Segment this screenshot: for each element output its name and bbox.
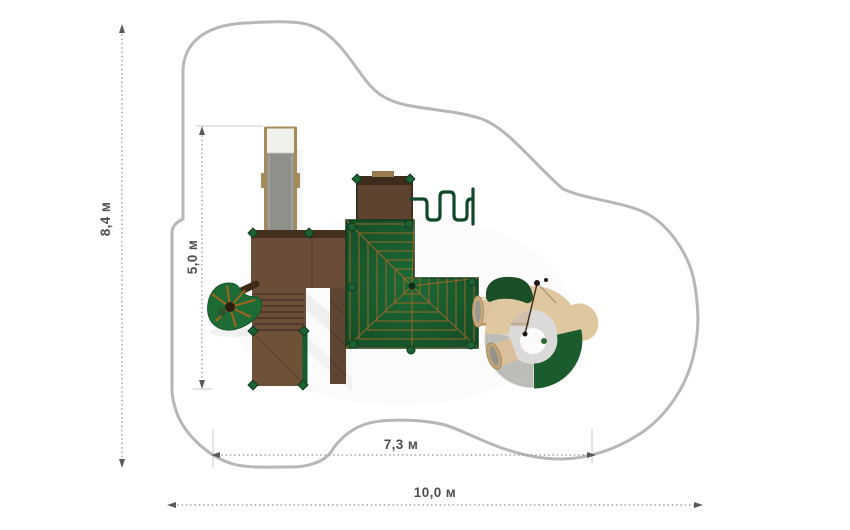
upper-platform — [251, 230, 346, 288]
straight-slide — [261, 127, 300, 239]
spiral-tube-slide — [484, 277, 605, 387]
side-deck-strip — [330, 288, 346, 384]
dimension-label-equipment-height: 5,0 м — [185, 225, 201, 289]
dimension-label-site-height: 8,4 м — [98, 187, 114, 251]
dimension-label-site-width: 10,0 м — [403, 485, 467, 501]
dimension-line-site-width — [167, 502, 703, 508]
lower-platform — [252, 333, 308, 386]
dimension-label-equipment-width: 7,3 м — [369, 437, 433, 453]
dimension-line-site-height — [119, 24, 125, 468]
playground-plan-view: 8,4 м 5,0 м 7,3 м 10,0 м — [0, 0, 850, 530]
